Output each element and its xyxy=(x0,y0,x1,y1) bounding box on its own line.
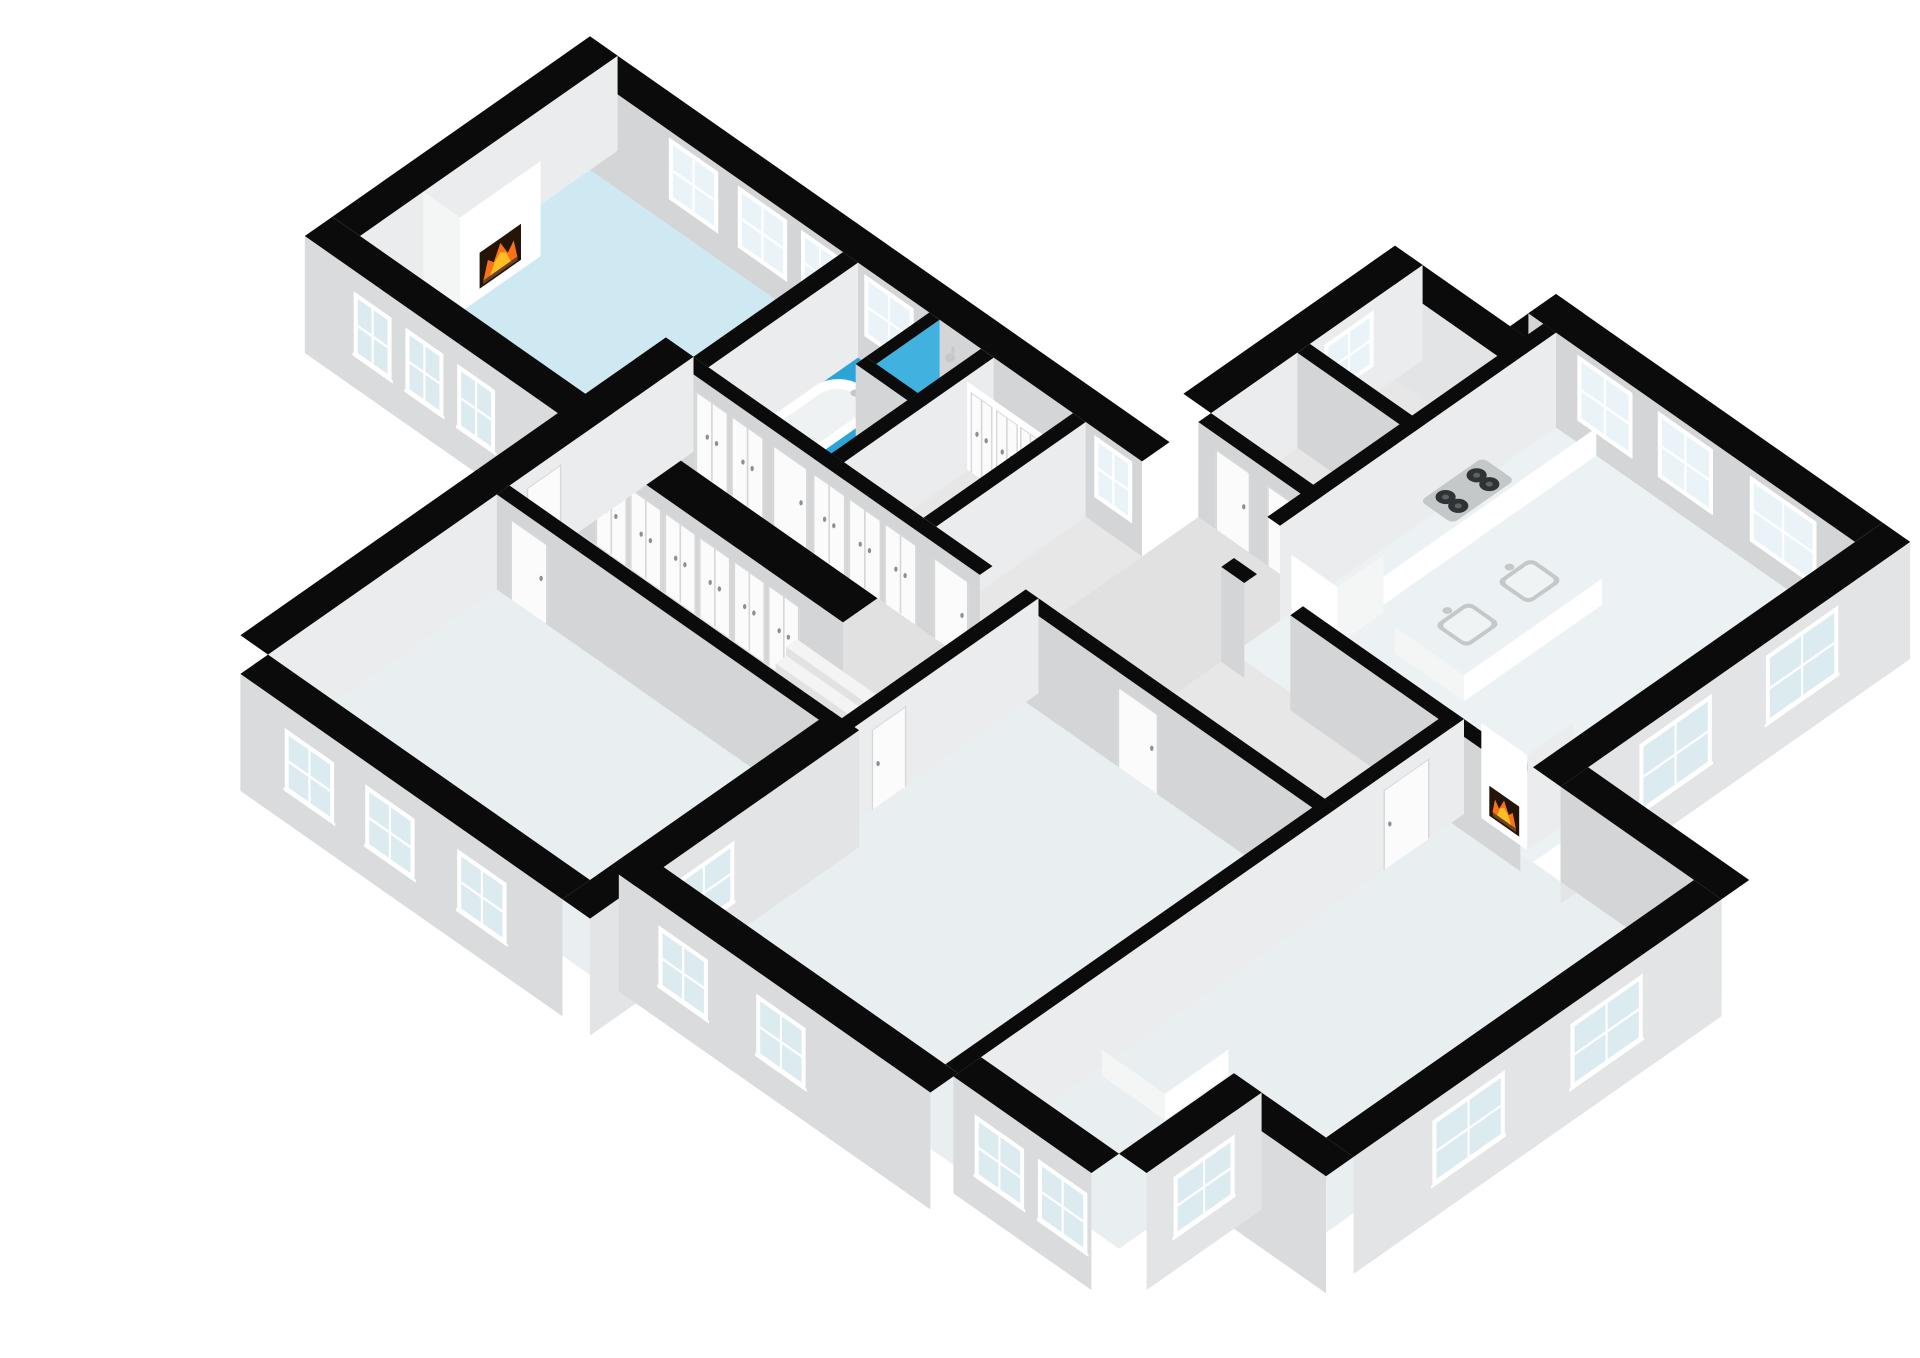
door-handle xyxy=(859,542,862,547)
door-handle xyxy=(975,432,978,437)
door-edge xyxy=(1216,449,1217,530)
door-edge xyxy=(660,509,661,590)
door-handle xyxy=(894,567,897,572)
door-handle xyxy=(1388,821,1391,826)
wall-kitchen-sw-1-face xyxy=(1221,567,1244,678)
door-handle xyxy=(876,761,879,766)
door-handle xyxy=(777,628,780,633)
door-edge xyxy=(511,519,512,600)
door-edge xyxy=(934,558,935,639)
closet-door-split xyxy=(645,500,647,579)
door-edge xyxy=(1249,472,1250,553)
door-edge xyxy=(694,533,695,614)
door-handle xyxy=(706,435,709,440)
closet-door-split xyxy=(864,510,866,589)
door-handle xyxy=(639,532,642,537)
door-edge xyxy=(630,489,631,570)
door-edge xyxy=(1428,758,1429,839)
door-edge xyxy=(768,585,769,666)
door-handle xyxy=(683,562,686,567)
door-edge xyxy=(880,520,881,601)
door-edge xyxy=(1157,714,1158,795)
door-handle xyxy=(752,610,755,615)
door-handle xyxy=(743,604,746,609)
door-edge xyxy=(699,537,700,618)
closet-door-split xyxy=(711,403,713,482)
floorplan-3d xyxy=(0,0,1920,1358)
door-handle xyxy=(614,514,617,519)
door-handle xyxy=(741,459,744,464)
closet-door-split xyxy=(828,485,830,564)
door-handle xyxy=(787,635,790,640)
door-edge xyxy=(732,416,733,497)
door-handle xyxy=(674,556,677,561)
door-handle xyxy=(832,523,835,528)
door-handle xyxy=(868,548,871,553)
door-edge xyxy=(813,473,814,554)
closet-door-split xyxy=(747,428,749,507)
door-edge xyxy=(849,498,850,579)
door-edge xyxy=(1267,485,1268,566)
door-handle xyxy=(649,538,652,543)
door-edge xyxy=(763,582,764,663)
door-edge xyxy=(884,523,885,604)
door-handle xyxy=(539,576,542,581)
door-edge xyxy=(734,561,735,642)
door-edge xyxy=(1384,789,1385,870)
door-edge xyxy=(665,513,666,594)
closet-door-split xyxy=(900,535,902,614)
door-edge xyxy=(546,544,547,625)
door-handle xyxy=(708,580,711,585)
door-edge xyxy=(971,392,972,473)
door-edge xyxy=(1118,687,1119,768)
door-edge xyxy=(872,729,873,810)
door-handle xyxy=(1001,449,1004,454)
door-handle xyxy=(1150,746,1153,751)
door-handle xyxy=(823,517,826,522)
shower-head xyxy=(945,353,955,362)
door-edge xyxy=(905,706,906,787)
door-edge xyxy=(844,495,845,576)
door-handle xyxy=(750,466,753,471)
closet-door-split xyxy=(680,524,682,603)
closet-door-split xyxy=(981,400,983,479)
door-handle xyxy=(984,438,987,443)
door-handle xyxy=(799,500,802,505)
door-handle xyxy=(715,441,718,446)
door-edge xyxy=(806,468,807,549)
door-edge xyxy=(773,445,774,526)
door-edge xyxy=(727,413,728,494)
door-handle xyxy=(1242,504,1245,509)
door-edge xyxy=(729,558,730,639)
door-handle xyxy=(960,613,963,618)
door-edge xyxy=(762,438,763,519)
floorplan-stage xyxy=(0,0,1920,1358)
closet-door-split xyxy=(714,548,716,627)
door-edge xyxy=(915,545,916,626)
door-handle xyxy=(903,573,906,578)
shower-arm xyxy=(951,347,954,355)
closet-door-split xyxy=(749,572,751,651)
door-edge xyxy=(696,391,697,472)
door-handle xyxy=(718,586,721,591)
